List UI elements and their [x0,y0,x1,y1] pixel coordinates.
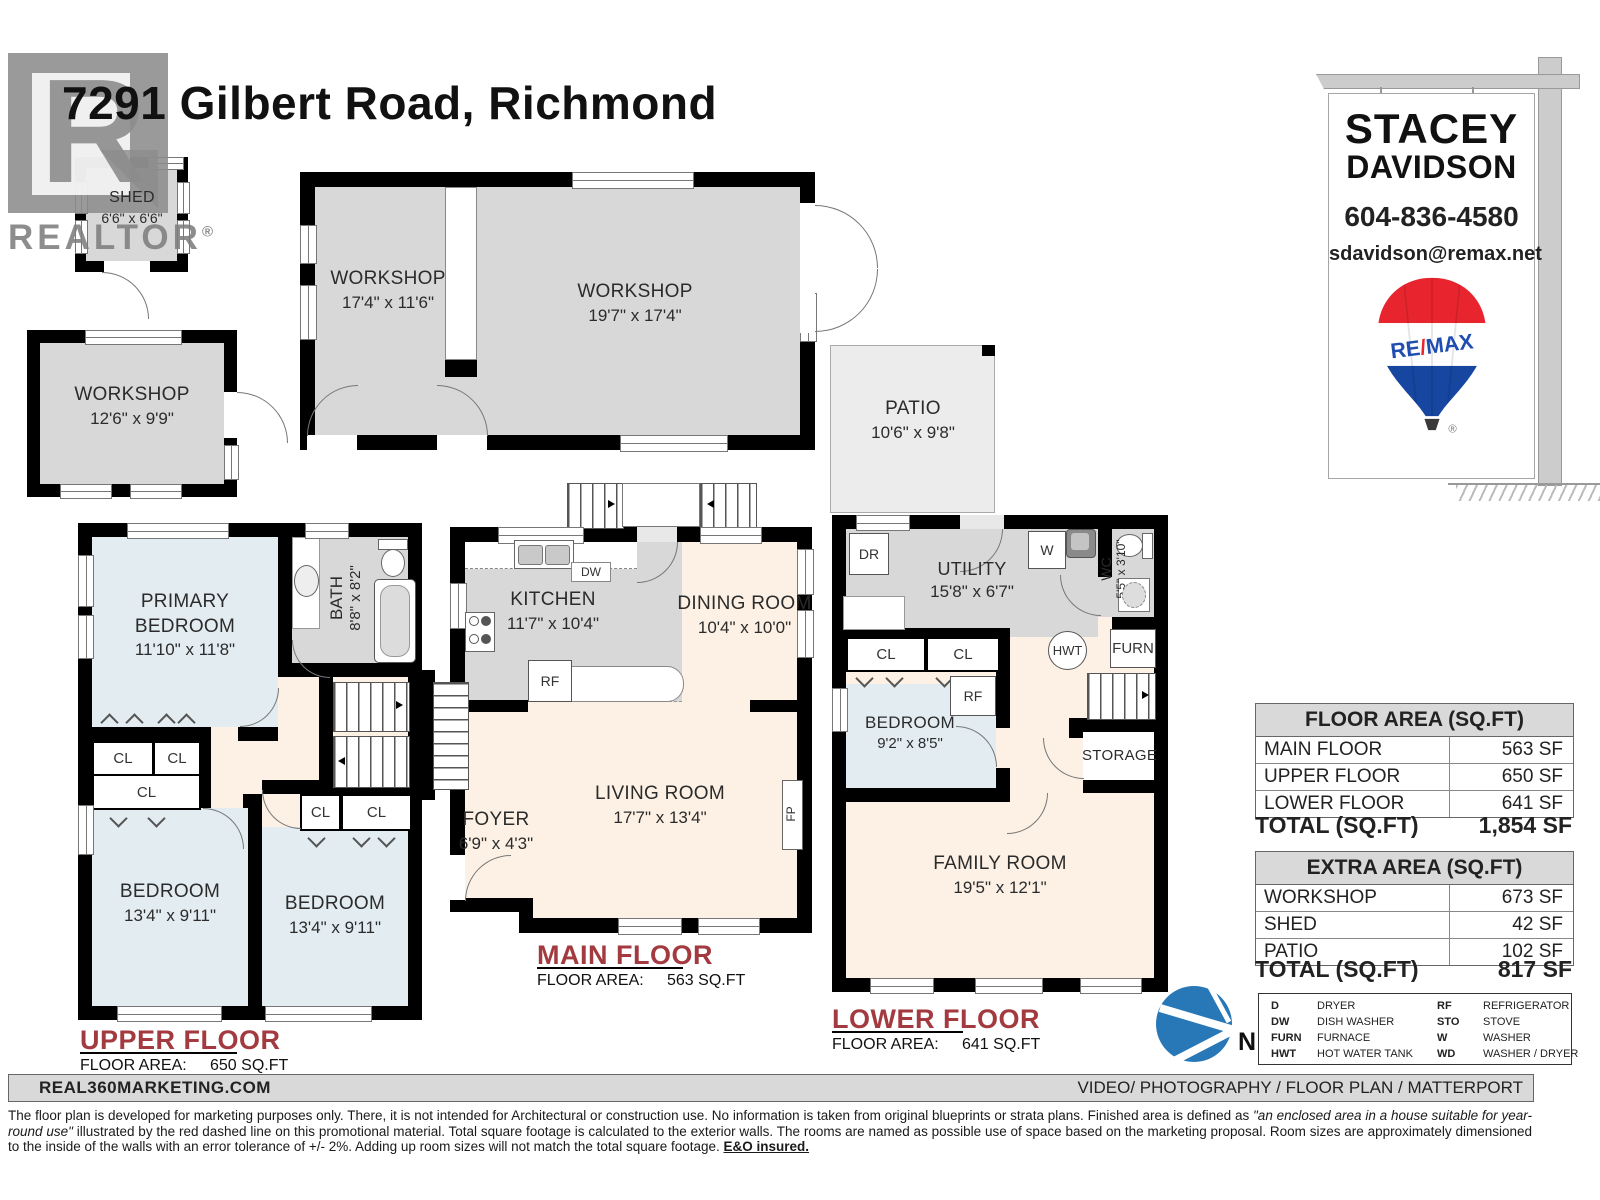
dishwasher-box: DW [571,562,611,582]
stairs-main [433,682,469,790]
wall [750,700,797,712]
wall [1069,718,1083,738]
window [832,688,848,732]
extra-area-total: TOTAL (SQ.FT) 817 SF [1255,956,1572,983]
legend-abbr: RF [1437,1000,1483,1012]
closet-label: CL [876,646,895,663]
legend-desc: DISH WASHER [1317,1016,1394,1028]
stair-arrow-icon [608,500,615,508]
foyer-label: FOYER 6'9" x 4'3" [455,808,537,855]
window [85,330,182,345]
kitchen-peninsula [570,666,684,702]
door-opening [800,203,815,333]
workshop-right-label: WORKSHOP 19'7" x 17'4" [555,280,715,327]
shed-label: SHED 6'6" x 6'6" [86,188,178,227]
wall [278,523,292,663]
footer-band: REAL360MARKETING.COM VIDEO/ PHOTOGRAPHY … [8,1074,1534,1102]
floor-area-total: TOTAL (SQ.FT) 1,854 SF [1255,812,1572,839]
window [177,182,190,214]
footer-right: VIDEO/ PHOTOGRAPHY / FLOOR PLAN / MATTER… [1077,1078,1533,1098]
window [975,978,1043,994]
utility-label: UTILITY 15'8" x 6'7" [902,558,1042,603]
wall-nub [797,848,812,870]
footer-left: REAL360MARKETING.COM [9,1078,271,1098]
window [698,918,760,935]
closet-label: CL [113,750,132,767]
row-label: SHED [1256,912,1450,938]
door-opening [224,392,237,438]
stair-arrow-icon [1142,691,1149,699]
agent-phone: 604-836-4580 [1329,201,1534,233]
door-arc [102,272,149,319]
compass-north-label: N [1238,1028,1256,1057]
stair-arrow-icon [396,701,403,709]
total-value: 817 SF [1498,956,1572,983]
wall-nub [982,345,995,356]
wall [465,700,528,712]
window [620,435,728,452]
legend-desc: HOT WATER TANK [1317,1048,1413,1060]
wc-sink-basin [1122,582,1146,608]
window [618,918,682,935]
wall [846,788,1010,802]
window [130,484,182,499]
legend-desc: WASHER / DRYER [1483,1048,1578,1060]
row-label: MAIN FLOOR [1256,737,1450,763]
primary-bedroom-label: PRIMARY BEDROOM 11'10" x 11'8" [105,590,265,661]
underline [537,967,683,969]
table-row: MAIN FLOOR 563 SF [1256,737,1573,764]
lower-bedroom-label: BEDROOM 9'2" x 8'5" [850,712,970,754]
legend-box: DDRYER DWDISH WASHER FURNFURNACE HWTHOT … [1258,993,1572,1065]
floor-area-value: 650 SQ.FT [210,1057,288,1075]
wall [445,360,477,377]
total-label: TOTAL (SQ.FT) [1255,812,1419,839]
hwt-label: HWT [1053,643,1083,658]
window [870,978,934,994]
table-row: WORKSHOP 673 SF [1256,885,1573,912]
closet-label: CL [167,750,186,767]
sign-board: STACEY DAVIDSON 604-836-4580 sdavidson@r… [1328,93,1535,479]
window [797,549,814,595]
wall [1083,780,1154,793]
dining-room-label: DINING ROOM 10'4" x 10'0" [672,592,817,639]
agent-first-name: STACEY [1329,108,1534,150]
wall [278,663,422,677]
window [572,172,694,189]
deck-landing [622,483,700,527]
closet: CL [341,794,412,831]
legend-abbr: FURN [1271,1032,1317,1044]
closet-label: CL [367,804,386,821]
floor-area-label: FLOOR AREA: [832,1036,939,1053]
bedroom-left-label: BEDROOM 13'4" x 9'11" [100,880,240,927]
extra-area-table-header: EXTRA AREA (SQ.FT) [1256,852,1573,885]
upper-floor-area: FLOOR AREA: 650 SQ.FT [80,1057,187,1075]
closet: CL [153,741,201,776]
refrigerator: RF [950,676,996,716]
total-label: TOTAL (SQ.FT) [1255,956,1419,983]
window [78,615,94,659]
deck-stairs-left [567,483,624,529]
table-row: UPPER FLOOR 650 SF [1256,764,1573,791]
extra-area-table: EXTRA AREA (SQ.FT) WORKSHOP 673 SF SHED … [1255,851,1574,966]
total-value: 1,854 SF [1479,812,1572,839]
window [78,555,94,607]
window [117,1006,222,1022]
kitchen-label: KITCHEN 11'7" x 10'4" [478,588,628,635]
legend-abbr: WD [1437,1048,1483,1060]
stair-arrow-icon [338,757,345,765]
floor-area-label: FLOOR AREA: [537,972,644,989]
kitchen-sink-basin [518,545,543,565]
window [224,445,239,480]
disclaimer: The floor plan is developed for marketin… [8,1108,1532,1155]
window [856,515,910,531]
page-title: 7291 Gilbert Road, Richmond [62,76,717,130]
row-label: UPPER FLOOR [1256,764,1450,790]
door-opening [104,261,150,272]
closet: CL [300,794,341,831]
closet-label: CL [137,784,156,801]
window [700,527,762,544]
closet: CL [92,741,154,776]
disclaimer-bold: E&O insured. [724,1139,810,1154]
hot-water-tank: HWT [1048,631,1087,670]
bath-label: BATH 8'8" x 8'2" [327,548,364,648]
row-value: 563 SF [1450,737,1573,763]
wall [248,808,262,1006]
door-opening [960,515,1004,529]
window [305,523,349,539]
legend-abbr: D [1271,1000,1317,1012]
fireplace-label: FP [784,790,798,838]
furnace: FURN [1110,629,1156,668]
refrigerator: RF [528,660,572,702]
door-arc [237,392,288,443]
closet-label: CL [953,646,972,663]
bedroom-right-label: BEDROOM 13'4" x 9'11" [265,892,405,939]
legend-desc: FURNACE [1317,1032,1370,1044]
legend-abbr: STO [1437,1016,1483,1028]
bathtub-inner [380,585,410,657]
underline [832,1031,963,1033]
stove-burner-icon [469,616,479,626]
closet-label: CL [311,804,330,821]
remax-balloon-logo: RE/MAX ® [1369,274,1495,444]
wall [519,898,533,933]
door-opening [637,527,677,542]
row-value: 42 SF [1450,912,1573,938]
wall [319,677,333,788]
utility-counter [843,596,905,630]
bath-sink [294,565,319,597]
ground-hatch [1456,485,1600,501]
door-opening [450,855,465,900]
double-door-arc-top [815,205,878,268]
floor-plan-sheet: R REALTOR® 7291 Gilbert Road, Richmond S… [0,0,1600,1200]
compass-icon [1152,984,1244,1068]
svg-text:®: ® [1448,424,1457,436]
door-opening [307,435,357,450]
wall [1083,718,1154,732]
workshop-left-label: WORKSHOP 17'4" x 11'6" [313,267,463,314]
door-opening [437,435,487,450]
legend-abbr: DW [1271,1016,1317,1028]
row-value: 650 SF [1450,764,1573,790]
floor-area-table: FLOOR AREA (SQ.FT) MAIN FLOOR 563 SF UPP… [1255,703,1574,818]
wall [238,727,278,741]
legend-desc: REFRIGERATOR [1483,1000,1569,1012]
floor-area-label: FLOOR AREA: [80,1057,187,1074]
washer-label: W [1040,542,1053,558]
sign-post [1538,57,1562,486]
underline [80,1052,237,1054]
storage-label: STORAGE [1082,746,1156,766]
window [78,805,94,855]
window [127,523,229,539]
agent-email: sdavidson@remax.net [1329,243,1534,266]
workshop-detached-label: WORKSHOP 12'6" x 9'9" [62,383,202,430]
living-room-label: LIVING ROOM 17'7" x 13'4" [585,782,735,829]
window [60,484,112,499]
toilet-bowl [381,549,405,577]
closet: CL [846,637,926,672]
row-label: WORKSHOP [1256,885,1450,911]
stair-arrow-icon [707,500,714,508]
wall [996,768,1010,790]
lower-floor-area: FLOOR AREA: 641 SQ.FT [832,1036,939,1054]
dishwasher-label: DW [581,565,601,579]
main-floor-area: FLOOR AREA: 563 SQ.FT [537,972,644,990]
kitchen-sink-basin [545,545,570,565]
legend-desc: WASHER [1483,1032,1531,1044]
legend-abbr: W [1437,1032,1483,1044]
floor-area-table-header: FLOOR AREA (SQ.FT) [1256,704,1573,737]
family-room-label: FAMILY ROOM 19'5" x 12'1" [925,852,1075,899]
furnace-label: FURN [1112,640,1154,657]
row-value: 673 SF [1450,885,1573,911]
window [265,1006,372,1022]
agent-last-name: DAVIDSON [1329,150,1534,185]
closet: CL [926,637,1000,672]
legend-desc: STOVE [1483,1016,1520,1028]
refrigerator-label: RF [964,688,983,704]
wall [243,794,262,808]
toilet-tank [1142,533,1153,559]
wall-nub [797,758,812,780]
legend-abbr: HWT [1271,1048,1317,1060]
dryer: DR [849,533,889,575]
floor-area-value: 563 SQ.FT [667,972,745,990]
laundry-sink-basin [1071,533,1089,550]
window [300,225,317,264]
patio-label: PATIO 10'6" x 9'8" [843,397,983,444]
stove-burner-icon [469,634,479,644]
closet: CL [92,774,201,810]
table-row: SHED 42 SF [1256,912,1573,939]
disclaimer-text: The floor plan is developed for marketin… [8,1108,1253,1123]
stove-burner-icon [481,634,491,644]
stove-burner-icon [481,616,491,626]
sign-crossbar [1316,74,1580,89]
refrigerator-label: RF [541,673,560,689]
floor-area-value: 641 SQ.FT [962,1036,1040,1054]
dryer-label: DR [859,546,879,562]
double-door-arc-bottom [815,269,878,332]
window [1080,978,1142,994]
legend-desc: DRYER [1317,1000,1355,1012]
